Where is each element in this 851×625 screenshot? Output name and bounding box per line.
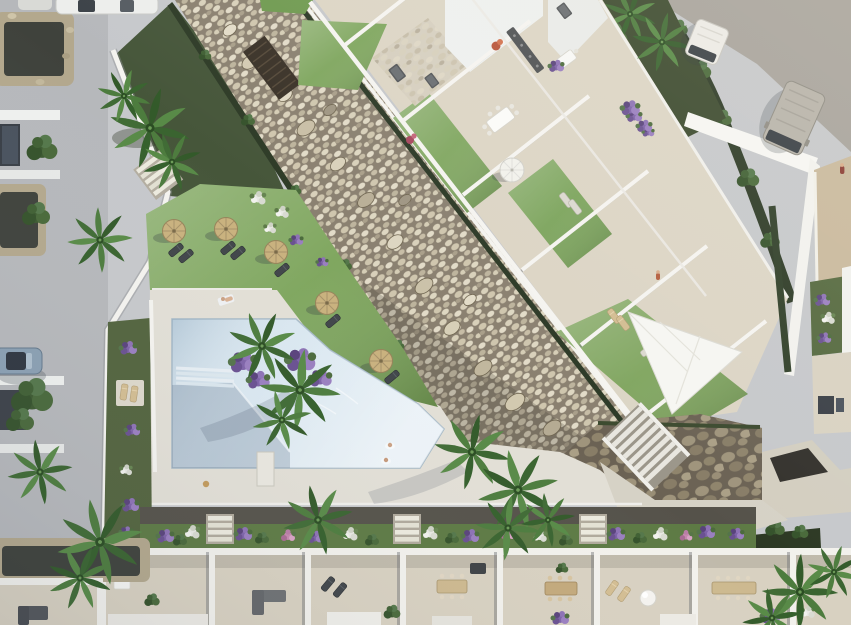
sunlight-overlay (0, 0, 851, 625)
aerial-render (0, 0, 851, 625)
render-canvas (0, 0, 851, 625)
